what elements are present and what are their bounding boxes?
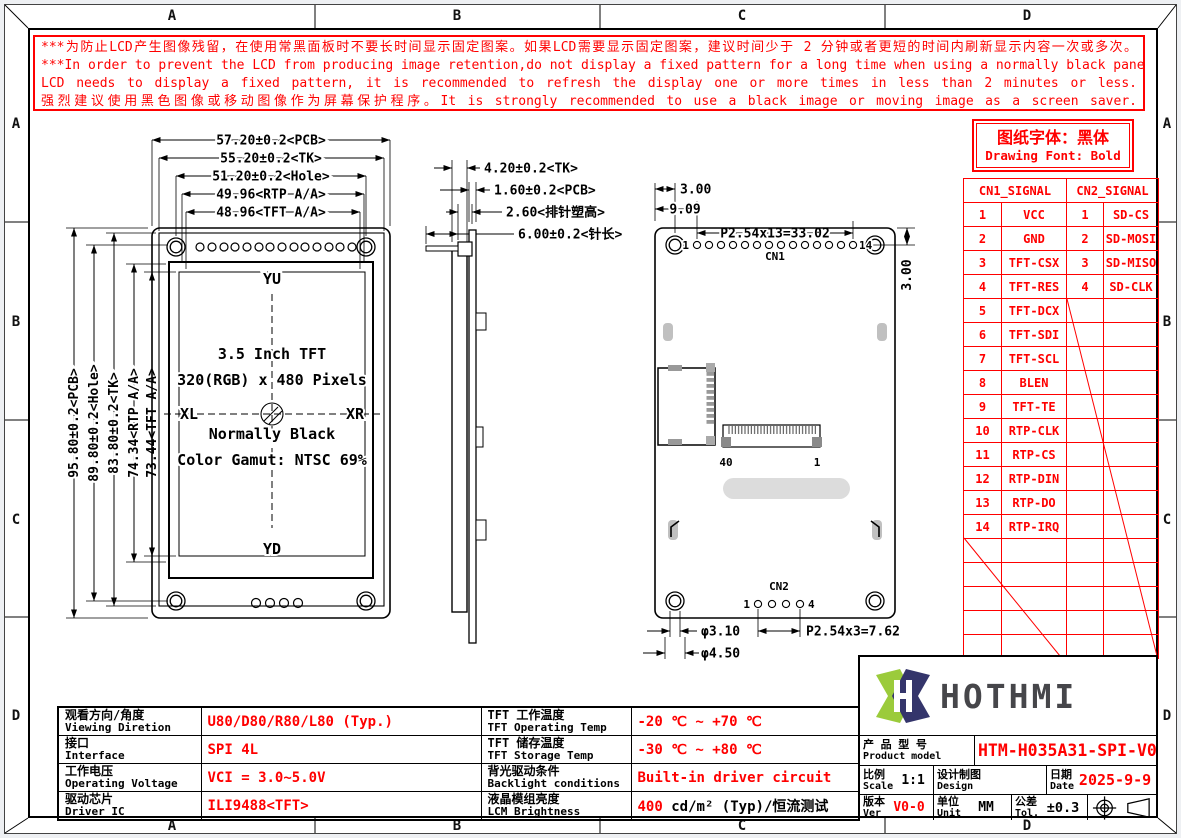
side-clip xyxy=(476,313,486,330)
zone-col-a-top: A xyxy=(168,8,176,24)
side-view-drawing: 4.20±0.2<TK> 1.60±0.2<PCB> 2.60<排针塑高> 6.… xyxy=(420,150,665,650)
label-yd: YD xyxy=(263,540,281,558)
date-value: 2025-9-9 xyxy=(1077,771,1153,789)
table-row: 接口Interface SPI 4L TFT 储存温度TFT Storage T… xyxy=(58,736,859,764)
table-row-empty xyxy=(964,611,1159,635)
cn2-signal-header: CN2_SIGNAL xyxy=(1067,179,1159,203)
zone-col-b-top: B xyxy=(453,8,461,24)
fpc-connector xyxy=(721,425,822,447)
warning-line-4: 强烈建议使用黑色图像或移动图像作为屏幕保护程序。It is strongly r… xyxy=(41,93,1137,111)
pin-header-pin xyxy=(426,246,458,251)
cn1-signal-header: CN1_SIGNAL xyxy=(964,179,1067,203)
dim-label: 55.20±0.2<TK> xyxy=(220,152,322,167)
warning-line-1: ***为防止LCD产生图像残留，在使用常黑面板时不要长时间显示固定图案。如果LC… xyxy=(41,39,1137,57)
label-xl: XL xyxy=(180,405,198,423)
zone-col-d-top: D xyxy=(1023,8,1031,24)
active-area-outline xyxy=(179,272,365,556)
back-view-drawing: 3.00 9.09 P2.54x13=33.02 3.00 φ3.10 φ4.5… xyxy=(635,175,935,675)
tf-card-pads xyxy=(668,363,715,445)
zone-row-b-right: B xyxy=(1163,314,1171,330)
zone-row-d-left: D xyxy=(12,708,20,724)
dim-label: 89.80±0.2<Hole> xyxy=(87,364,102,482)
dim-label: φ3.10 xyxy=(701,625,740,640)
dim-label: 48.96<TFT A/A> xyxy=(216,206,326,221)
table-row: 14RTP-IRQ xyxy=(964,515,1159,539)
gamut-label: Color Gamut: NTSC 69% xyxy=(177,451,367,469)
dim-label: 74.34<RTP A/A> xyxy=(127,368,142,478)
font-note-box: 图纸字体：黑体 Drawing Font: Bold xyxy=(972,119,1134,172)
mounting-holes xyxy=(666,236,884,610)
label-xr: XR xyxy=(346,405,365,423)
cn2-label: CN2 xyxy=(769,580,789,593)
font-note-cn: 图纸字体：黑体 xyxy=(977,128,1129,148)
side-clip xyxy=(476,520,486,540)
cn1-pin1-label: 1 xyxy=(682,239,689,252)
table-row: 5TFT-DCX xyxy=(964,299,1159,323)
dim-label: P2.54x3=7.62 xyxy=(806,625,900,640)
resolution-label: 320(RGB) x 480 Pixels xyxy=(177,371,367,389)
cn2-pin1-label: 1 xyxy=(743,598,750,611)
drawing-sheet: A B C D A B C D A B C D A B C D ***为防止LC… xyxy=(0,0,1181,838)
cn1-pin-holes xyxy=(693,241,856,248)
warning-line-2: ***In order to prevent the LCD from prod… xyxy=(41,57,1137,75)
cn1-pin14-label: 14 xyxy=(859,239,873,252)
display-module-outline xyxy=(169,262,373,578)
table-row: 7TFT-SCL xyxy=(964,347,1159,371)
edge-marks xyxy=(671,521,879,537)
warning-line-3: LCD needs to display a fixed pattern, it… xyxy=(41,75,1137,93)
table-row: 工作电压Operating Voltage VCI = 3.0~5.0V 背光驱… xyxy=(58,764,859,792)
label-yu: YU xyxy=(263,270,281,288)
table-row: 3TFT-CSX3SD-MISO xyxy=(964,251,1159,275)
unit-value: MM xyxy=(964,800,1008,815)
pcb-side-profile xyxy=(469,230,476,643)
zone-row-a-left: A xyxy=(12,116,20,132)
dim-label: 1.60±0.2<PCB> xyxy=(494,184,596,199)
tolerance-value: ±0.3 xyxy=(1042,800,1084,816)
cn1-label: CN1 xyxy=(765,250,785,263)
dim-label: 49.96<RTP A/A> xyxy=(216,188,326,203)
zone-row-a-right: A xyxy=(1163,116,1171,132)
table-row: 11RTP-CS xyxy=(964,443,1159,467)
pcb-back-outline xyxy=(655,228,895,618)
zone-row-c-left: C xyxy=(12,512,20,528)
cn1-pin-holes xyxy=(196,243,356,251)
font-note-en: Drawing Font: Bold xyxy=(977,148,1129,164)
projection-symbol-icon xyxy=(1091,796,1153,820)
table-row: 6TFT-SDI xyxy=(964,323,1159,347)
table-row: 8BLEN xyxy=(964,371,1159,395)
product-model-row: 产 品 型 号Product model HTM-H035A31-SPI-V04 xyxy=(860,735,1156,765)
dim-label: 2.60<排针塑高> xyxy=(506,205,605,221)
logo: HOTHMI xyxy=(860,657,1156,735)
zone-col-d-bottom: D xyxy=(1023,818,1031,834)
mode-label: Normally Black xyxy=(209,425,335,443)
retention-warning-box: ***为防止LCD产生图像残留，在使用常黑面板时不要长时间显示固定图案。如果LC… xyxy=(33,35,1145,111)
tf-card-slot xyxy=(658,368,715,445)
table-row-empty xyxy=(964,563,1159,587)
fpc-opening xyxy=(723,478,850,499)
table-row: 4TFT-RES4SD-CLK xyxy=(964,275,1159,299)
dim-label: 9.09 xyxy=(669,203,700,218)
spec-table: 观看方向/角度Viewing Diretion U80/D80/R80/L80 … xyxy=(57,706,860,821)
table-row: 10RTP-CLK xyxy=(964,419,1159,443)
dim-label: 57.20±0.2<PCB> xyxy=(216,134,326,149)
dim-label: 3.00 xyxy=(680,183,711,198)
scale-value: 1:1 xyxy=(896,773,930,788)
pin-header-plastic xyxy=(458,242,472,256)
dim-label: 4.20±0.2<TK> xyxy=(484,162,578,177)
zone-row-d-right: D xyxy=(1163,708,1171,724)
table-row: 12RTP-DIN xyxy=(964,467,1159,491)
table-row-empty xyxy=(964,587,1159,611)
dim-label: 83.80±0.2<TK> xyxy=(107,372,122,474)
fpc-pin1-label: 1 xyxy=(814,456,821,469)
zone-col-c-top: C xyxy=(738,8,746,24)
panel-size-label: 3.5 Inch TFT xyxy=(218,345,326,363)
panel-side-profile xyxy=(452,250,467,612)
zone-row-b-left: B xyxy=(12,314,20,330)
cn2-pin-holes xyxy=(754,600,803,607)
ver-unit-tol-row: 版本Ver V0-0 单位Unit MM 公差Tol. ±0.3 xyxy=(860,794,1156,820)
table-row: 9TFT-TE xyxy=(964,395,1159,419)
zone-row-c-right: C xyxy=(1163,512,1171,528)
product-model-value: HTM-H035A31-SPI-V04 xyxy=(978,741,1156,760)
side-clip xyxy=(476,427,483,447)
scale-design-date-row: 比例Scale 1:1 设计制图Design 日期Date 2025-9-9 xyxy=(860,765,1156,794)
cn2-pin4-label: 4 xyxy=(808,598,815,611)
table-row: 驱动芯片Driver IC ILI9488<TFT> 液晶模组亮度LCM Bri… xyxy=(58,792,859,821)
dim-label: 6.00±0.2<针长> xyxy=(518,227,622,243)
table-row: 2GND2SD-MOSI xyxy=(964,227,1159,251)
signal-table-header: CN1_SIGNAL CN2_SIGNAL xyxy=(964,179,1159,203)
table-row: 1VCC1SD-CS xyxy=(964,203,1159,227)
table-row-empty xyxy=(964,539,1159,563)
fpc-pin40-label: 40 xyxy=(719,456,732,469)
table-row: 观看方向/角度Viewing Diretion U80/D80/R80/L80 … xyxy=(58,707,859,736)
title-block: HOTHMI 产 品 型 号Product model HTM-H035A31-… xyxy=(858,655,1158,818)
dim-label: 51.20±0.2<Hole> xyxy=(212,170,330,185)
dim-label: 3.00 xyxy=(900,259,915,290)
signal-table: CN1_SIGNAL CN2_SIGNAL 1VCC1SD-CS 2GND2SD… xyxy=(963,178,1159,659)
hothmi-logo-icon xyxy=(874,667,932,725)
dim-label: 95.80±0.2<PCB> xyxy=(67,368,82,478)
table-row: 13RTP-DO xyxy=(964,491,1159,515)
logo-wordmark: HOTHMI xyxy=(940,677,1077,716)
version-value: V0-0 xyxy=(888,800,930,815)
dim-label: φ4.50 xyxy=(701,647,740,662)
front-view-drawing: 57.20±0.2<PCB> 55.20±0.2<TK> 51.20±0.2<H… xyxy=(60,128,430,640)
